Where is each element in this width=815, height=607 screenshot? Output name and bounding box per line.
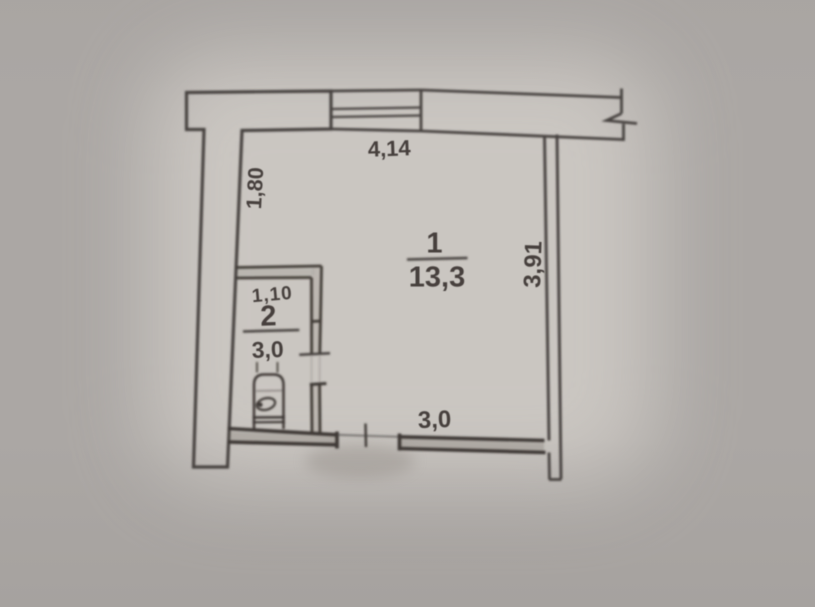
svg-text:4,14: 4,14 (367, 135, 411, 162)
svg-text:1: 1 (426, 228, 442, 260)
svg-text:1,80: 1,80 (242, 167, 268, 210)
svg-text:13,3: 13,3 (409, 262, 465, 294)
svg-text:3,0: 3,0 (251, 336, 284, 363)
svg-text:3,0: 3,0 (417, 406, 451, 434)
svg-text:2: 2 (260, 300, 277, 333)
svg-text:3,91: 3,91 (519, 241, 548, 289)
